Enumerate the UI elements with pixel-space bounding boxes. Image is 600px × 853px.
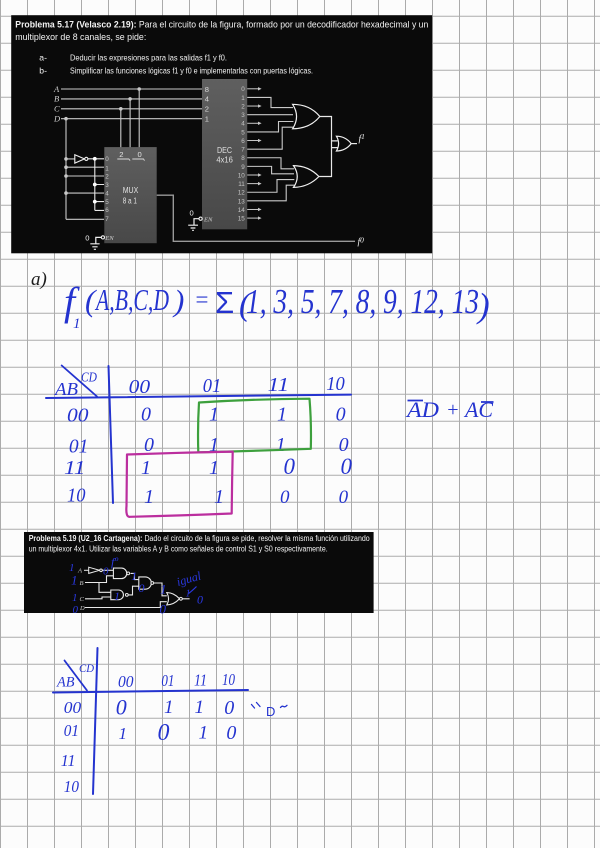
svg-text:9: 9 [241, 164, 245, 171]
svg-text:1: 1 [214, 486, 224, 508]
svg-text:0: 0 [73, 604, 79, 616]
svg-text:00: 00 [64, 698, 82, 717]
svg-text:1: 1 [72, 592, 78, 604]
svg-text:10: 10 [238, 172, 246, 179]
svg-text:8 a 1: 8 a 1 [123, 197, 138, 206]
svg-text:7: 7 [241, 147, 245, 154]
svg-text:1: 1 [73, 316, 81, 332]
svg-text:0: 0 [224, 697, 234, 719]
svg-text:): ) [172, 283, 184, 318]
svg-text:01: 01 [64, 721, 79, 740]
svg-text:0: 0 [139, 581, 145, 595]
svg-text:6: 6 [105, 207, 109, 214]
svg-text:13: 13 [238, 198, 246, 205]
svg-text:0: 0 [158, 720, 170, 746]
svg-text:1: 1 [105, 166, 109, 173]
svg-text:00: 00 [67, 405, 89, 427]
svg-text:AC: AC [463, 397, 493, 422]
svg-text:0: 0 [103, 566, 109, 578]
svg-text:0: 0 [339, 434, 349, 456]
svg-text:2: 2 [105, 173, 109, 180]
svg-text:3: 3 [241, 112, 245, 119]
svg-text:fº: fº [111, 555, 118, 569]
svg-text:1: 1 [209, 404, 219, 426]
svg-text:7: 7 [105, 216, 109, 223]
svg-text:B: B [80, 580, 84, 587]
svg-text:0: 0 [160, 602, 167, 617]
svg-text:AB: AB [56, 675, 74, 691]
svg-text:8: 8 [205, 85, 209, 94]
svg-text:Deducir las expresiones para l: Deducir las expresiones para las salidas… [70, 52, 227, 62]
svg-text:1: 1 [199, 723, 209, 744]
svg-text:): ) [476, 286, 490, 325]
svg-text:6: 6 [241, 138, 245, 145]
svg-text:5: 5 [105, 199, 109, 206]
svg-text:0: 0 [197, 593, 203, 607]
svg-text:1: 1 [186, 589, 191, 600]
svg-text:1: 1 [164, 697, 174, 718]
svg-text:A,B,C,D: A,B,C,D [95, 282, 169, 317]
svg-text:10: 10 [67, 485, 86, 507]
svg-text:D: D [79, 605, 85, 612]
svg-text:un multiplexor 4x1. Utilizar l: un multiplexor 4x1. Utilizar las variabl… [29, 544, 328, 553]
svg-text:2: 2 [241, 103, 245, 110]
svg-text:4x16: 4x16 [216, 155, 233, 164]
svg-text:CD: CD [81, 371, 97, 386]
svg-text:0: 0 [341, 454, 353, 479]
svg-text:1: 1 [241, 95, 245, 102]
svg-text:MUX: MUX [123, 186, 139, 195]
svg-text:multiplexor de 8 canales, se p: multiplexor de 8 canales, se pide: [15, 32, 146, 42]
svg-text:1: 1 [209, 457, 219, 479]
svg-text:1: 1 [131, 569, 137, 583]
svg-text:1: 1 [119, 724, 128, 743]
svg-text:0: 0 [85, 233, 89, 242]
svg-text:1: 1 [141, 457, 151, 479]
svg-text:D: D [266, 704, 275, 719]
svg-text:DEC: DEC [217, 146, 232, 155]
svg-text:14: 14 [238, 207, 246, 214]
svg-text:a-: a- [39, 52, 47, 62]
svg-text:01: 01 [161, 671, 174, 690]
svg-text:10: 10 [326, 373, 345, 395]
svg-text:11: 11 [238, 181, 245, 188]
svg-text:+: + [446, 399, 460, 421]
svg-text:C: C [54, 104, 60, 114]
svg-text:C: C [80, 596, 85, 603]
svg-text:Σ: Σ [215, 285, 234, 320]
svg-text:1: 1 [205, 115, 209, 124]
svg-text:3: 3 [105, 182, 109, 189]
svg-text:a): a) [31, 269, 47, 290]
svg-text:=: = [194, 287, 210, 312]
svg-text:8: 8 [241, 155, 245, 162]
svg-text:0: 0 [241, 86, 245, 93]
svg-text:B: B [54, 94, 59, 104]
svg-text:01: 01 [203, 375, 222, 397]
svg-text:Problema 5.17 (Velasco 2.19):: Problema 5.17 (Velasco 2.19): Para el ci… [15, 20, 428, 30]
svg-text:0: 0 [116, 695, 127, 720]
svg-text:4: 4 [241, 121, 245, 128]
svg-text:00: 00 [118, 672, 134, 691]
svg-text:5: 5 [241, 129, 245, 136]
svg-text:0: 0 [339, 487, 349, 508]
svg-text:Simplificar las funciones lógi: Simplificar las funciones lógicas f1 y f… [70, 65, 313, 75]
svg-text:AB: AB [54, 379, 78, 399]
svg-text:b-: b- [39, 65, 47, 75]
svg-text:2: 2 [205, 105, 209, 114]
svg-text:11: 11 [64, 457, 86, 479]
svg-text:1: 1 [114, 589, 120, 603]
svg-text:11: 11 [61, 751, 76, 770]
svg-text:D: D [53, 114, 61, 124]
svg-text:0: 0 [138, 150, 142, 159]
svg-text:A: A [53, 84, 60, 94]
svg-text:15: 15 [238, 216, 246, 223]
svg-text:00: 00 [129, 376, 151, 398]
svg-text:CD: CD [79, 661, 94, 675]
svg-text:1: 1 [195, 697, 205, 718]
svg-text:EN: EN [104, 235, 114, 242]
svg-text:0: 0 [105, 156, 109, 163]
svg-text:12: 12 [238, 190, 246, 197]
svg-text:10: 10 [222, 670, 235, 689]
svg-text:1: 1 [276, 434, 286, 456]
svg-text:10: 10 [64, 777, 80, 796]
svg-text:11: 11 [268, 374, 290, 396]
svg-text:1: 1 [71, 573, 78, 588]
svg-text:0: 0 [190, 209, 194, 218]
svg-text:EN: EN [203, 216, 213, 223]
svg-text:0: 0 [336, 404, 346, 426]
svg-text:4: 4 [105, 190, 109, 197]
svg-text:1: 1 [144, 486, 154, 508]
svg-text:2: 2 [119, 150, 123, 159]
svg-text:4: 4 [205, 95, 209, 104]
svg-text:11: 11 [194, 671, 207, 690]
svg-text:Problema 5.19 (U2_16 Cartagena: Problema 5.19 (U2_16 Cartagena): Dado el… [29, 534, 371, 543]
svg-text:0: 0 [284, 454, 296, 479]
svg-text:0: 0 [280, 487, 290, 508]
svg-text:1: 1 [277, 404, 287, 426]
svg-text:1, 3, 5, 7, 8, 9, 12, 13: 1, 3, 5, 7, 8, 9, 12, 13 [246, 282, 479, 321]
svg-text:1: 1 [160, 582, 167, 597]
svg-text:01: 01 [69, 436, 89, 458]
svg-text:0: 0 [226, 722, 236, 744]
svg-text:0: 0 [141, 404, 151, 426]
